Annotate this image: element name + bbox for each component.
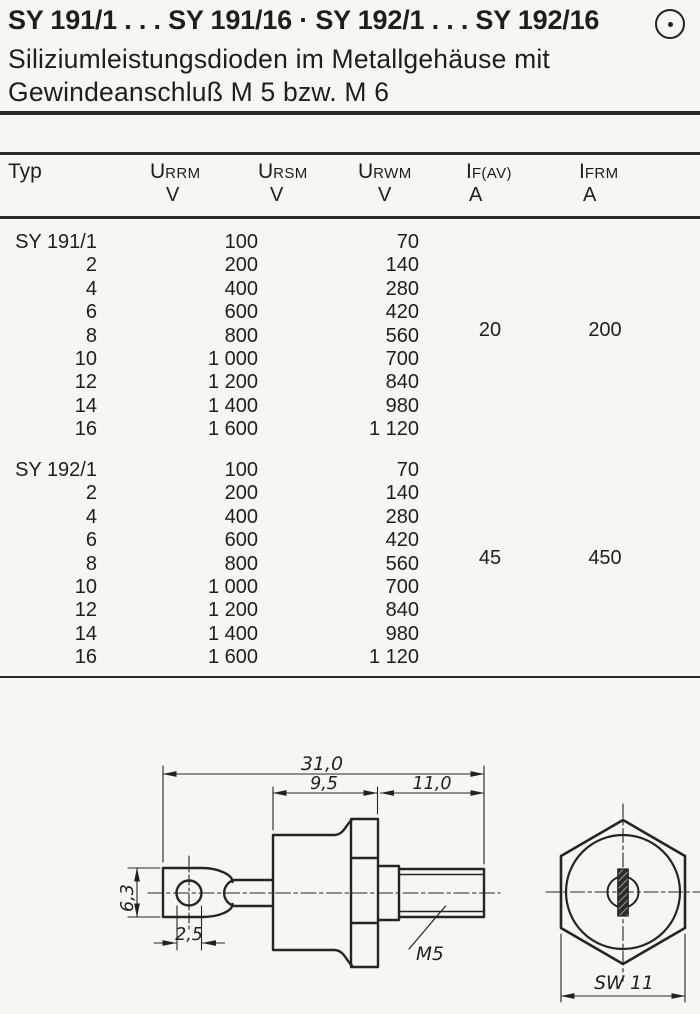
urwm-column: 701402804205607008409801 120 — [290, 459, 419, 670]
column-header-urwm: URWM — [358, 160, 412, 184]
dim-label-lug-width: 6,3 — [118, 884, 138, 912]
ifav-value: 45 — [460, 547, 520, 570]
cell-typ: 14 — [8, 623, 97, 646]
cell-urwm: 140 — [290, 482, 419, 505]
circle-dot-icon — [655, 9, 685, 39]
technical-drawing: 31,0 9,5 11,0 6,3 2,5 M5 SW 11 — [0, 745, 700, 1014]
cell-urrm: 100 — [140, 231, 258, 254]
column-header-urrm: URRM — [150, 160, 201, 184]
side-view-labels: 31,0 9,5 11,0 6,3 2,5 M5 — [118, 753, 451, 965]
page-title: SY 191/1 . . . SY 191/16 · SY 192/1 . . … — [8, 5, 648, 36]
dim-label-stud-length: 11,0 — [413, 774, 452, 794]
cell-typ: 4 — [8, 506, 97, 529]
dim-label-hole-diameter: 2,5 — [175, 925, 203, 945]
rule-below-table — [0, 676, 700, 678]
cell-urrm: 1 400 — [140, 623, 258, 646]
cell-urwm: 980 — [290, 395, 419, 418]
ifav-value: 20 — [460, 319, 520, 342]
cell-urwm: 560 — [290, 325, 419, 348]
cell-typ: SY 191/1 — [8, 231, 97, 254]
cell-urrm: 1 200 — [140, 599, 258, 622]
cell-typ: 6 — [8, 529, 97, 552]
cell-urrm: 200 — [140, 482, 258, 505]
cell-urwm: 70 — [290, 459, 419, 482]
circle-dot-icon-center — [668, 22, 673, 27]
typ-column: SY 191/1246810121416 — [8, 231, 97, 442]
cell-typ: 10 — [8, 348, 97, 371]
stud-slot — [618, 869, 628, 916]
datasheet-page: SY 191/1 . . . SY 191/16 · SY 192/1 . . … — [0, 0, 700, 1014]
cell-urwm: 420 — [290, 529, 419, 552]
cell-urrm: 400 — [140, 506, 258, 529]
subtitle-line-2: Gewindeanschluß M 5 bzw. M 6 — [8, 77, 389, 108]
cell-urwm: 700 — [290, 348, 419, 371]
typ-column: SY 192/1246810121416 — [8, 459, 97, 670]
cell-typ: 2 — [8, 482, 97, 505]
dim-label-overall-length: 31,0 — [301, 753, 343, 775]
ifrm-value: 200 — [572, 319, 638, 342]
ifrm-value: 450 — [572, 547, 638, 570]
cell-typ: 12 — [8, 371, 97, 394]
unit-ifav: A — [469, 184, 482, 207]
column-header-ifav: IF(AV) — [466, 160, 512, 184]
cell-urrm: 800 — [140, 325, 258, 348]
cell-typ: 6 — [8, 301, 97, 324]
cell-urwm: 1 120 — [290, 646, 419, 669]
urrm-column: 1002004006008001 0001 2001 4001 600 — [140, 231, 258, 442]
column-header-ursm: URSM — [258, 160, 308, 184]
wrench-size-label: SW 11 — [594, 973, 653, 994]
cell-urwm: 840 — [290, 599, 419, 622]
cell-urwm: 140 — [290, 254, 419, 277]
urwm-column: 701402804205607008409801 120 — [290, 231, 419, 442]
cell-urrm: 1 600 — [140, 418, 258, 441]
cell-typ: 10 — [8, 576, 97, 599]
cell-urrm: 600 — [140, 529, 258, 552]
cell-urwm: 280 — [290, 278, 419, 301]
cell-typ: 14 — [8, 395, 97, 418]
unit-urrm: V — [166, 184, 179, 207]
column-header-ifrm: IFRM — [579, 160, 619, 184]
unit-ifrm: A — [583, 184, 596, 207]
table-group-sy191: SY 191/1246810121416 1002004006008001 00… — [8, 231, 688, 443]
cell-typ: 16 — [8, 418, 97, 441]
cell-typ: 8 — [8, 325, 97, 348]
cell-urrm: 1 000 — [140, 576, 258, 599]
dim-label-case-length: 9,5 — [310, 774, 338, 794]
cell-typ: 8 — [8, 553, 97, 576]
rule-below-subtitle — [0, 111, 700, 115]
subtitle-line-1: Siliziumleistungsdioden im Metallgehäuse… — [8, 44, 550, 75]
table-group-sy192: SY 192/1246810121416 1002004006008001 00… — [8, 459, 688, 671]
cell-urwm: 560 — [290, 553, 419, 576]
cell-urrm: 1 200 — [140, 371, 258, 394]
cell-urwm: 1 120 — [290, 418, 419, 441]
cell-typ: 2 — [8, 254, 97, 277]
urrm-column: 1002004006008001 0001 2001 4001 600 — [140, 459, 258, 670]
unit-urwm: V — [378, 184, 391, 207]
thread-label: M5 — [416, 944, 444, 965]
cell-urwm: 70 — [290, 231, 419, 254]
rule-above-table-header — [0, 152, 700, 155]
m5-leader-line — [409, 906, 446, 949]
cell-urwm: 700 — [290, 576, 419, 599]
cell-typ: 12 — [8, 599, 97, 622]
cell-urrm: 1 000 — [140, 348, 258, 371]
cell-urrm: 800 — [140, 553, 258, 576]
cell-urwm: 280 — [290, 506, 419, 529]
cell-typ: 16 — [8, 646, 97, 669]
cell-typ: 4 — [8, 278, 97, 301]
cell-urrm: 1 400 — [140, 395, 258, 418]
cell-urwm: 980 — [290, 623, 419, 646]
cell-typ: SY 192/1 — [8, 459, 97, 482]
rule-below-table-header — [0, 216, 700, 219]
cell-urrm: 1 600 — [140, 646, 258, 669]
cell-urwm: 420 — [290, 301, 419, 324]
column-header-typ: Typ — [8, 160, 42, 184]
cell-urrm: 200 — [140, 254, 258, 277]
unit-ursm: V — [270, 184, 283, 207]
cell-urrm: 400 — [140, 278, 258, 301]
cell-urrm: 600 — [140, 301, 258, 324]
cell-urrm: 100 — [140, 459, 258, 482]
cell-urwm: 840 — [290, 371, 419, 394]
